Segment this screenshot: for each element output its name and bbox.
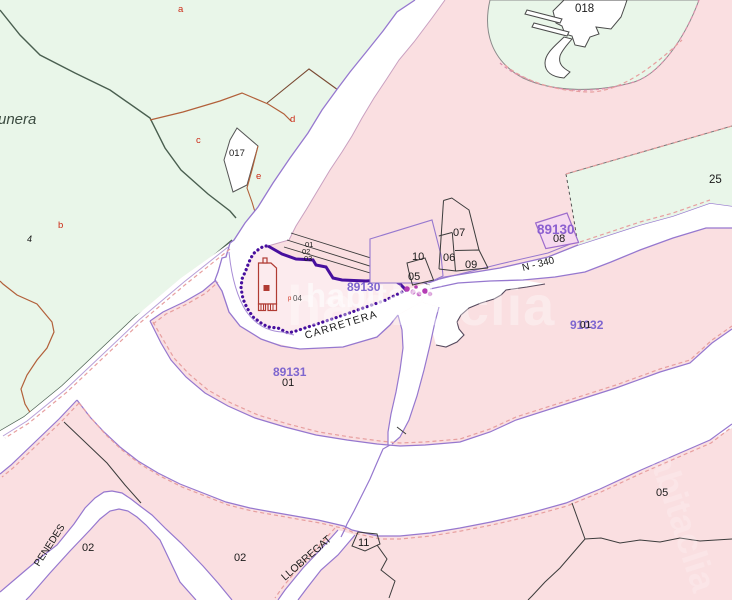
- svg-text:unera: unera: [0, 111, 36, 128]
- svg-text:10: 10: [412, 251, 424, 263]
- svg-text:04: 04: [293, 294, 302, 303]
- svg-text:habitaclia: habitaclia: [306, 277, 463, 314]
- svg-text:07: 07: [453, 227, 465, 239]
- svg-text:11: 11: [358, 537, 369, 549]
- svg-text:09: 09: [465, 259, 477, 271]
- svg-text:a: a: [178, 4, 184, 15]
- svg-text:02: 02: [234, 552, 246, 564]
- svg-text:017: 017: [229, 148, 245, 159]
- svg-text:018: 018: [575, 3, 594, 15]
- svg-text:02: 02: [82, 542, 94, 554]
- svg-text:4: 4: [27, 234, 32, 244]
- svg-text:b: b: [58, 220, 63, 231]
- svg-text:03: 03: [304, 254, 312, 263]
- svg-text:c: c: [196, 135, 201, 146]
- svg-text:25: 25: [709, 174, 722, 186]
- svg-text:89130: 89130: [537, 222, 575, 237]
- svg-text:01: 01: [282, 377, 294, 389]
- svg-text:05: 05: [656, 487, 668, 499]
- svg-text:d: d: [290, 114, 295, 125]
- svg-text:05: 05: [408, 271, 420, 283]
- svg-text:89130: 89130: [347, 280, 381, 294]
- svg-text:06: 06: [443, 252, 455, 264]
- svg-text:e: e: [256, 171, 261, 182]
- svg-text:01: 01: [580, 320, 592, 331]
